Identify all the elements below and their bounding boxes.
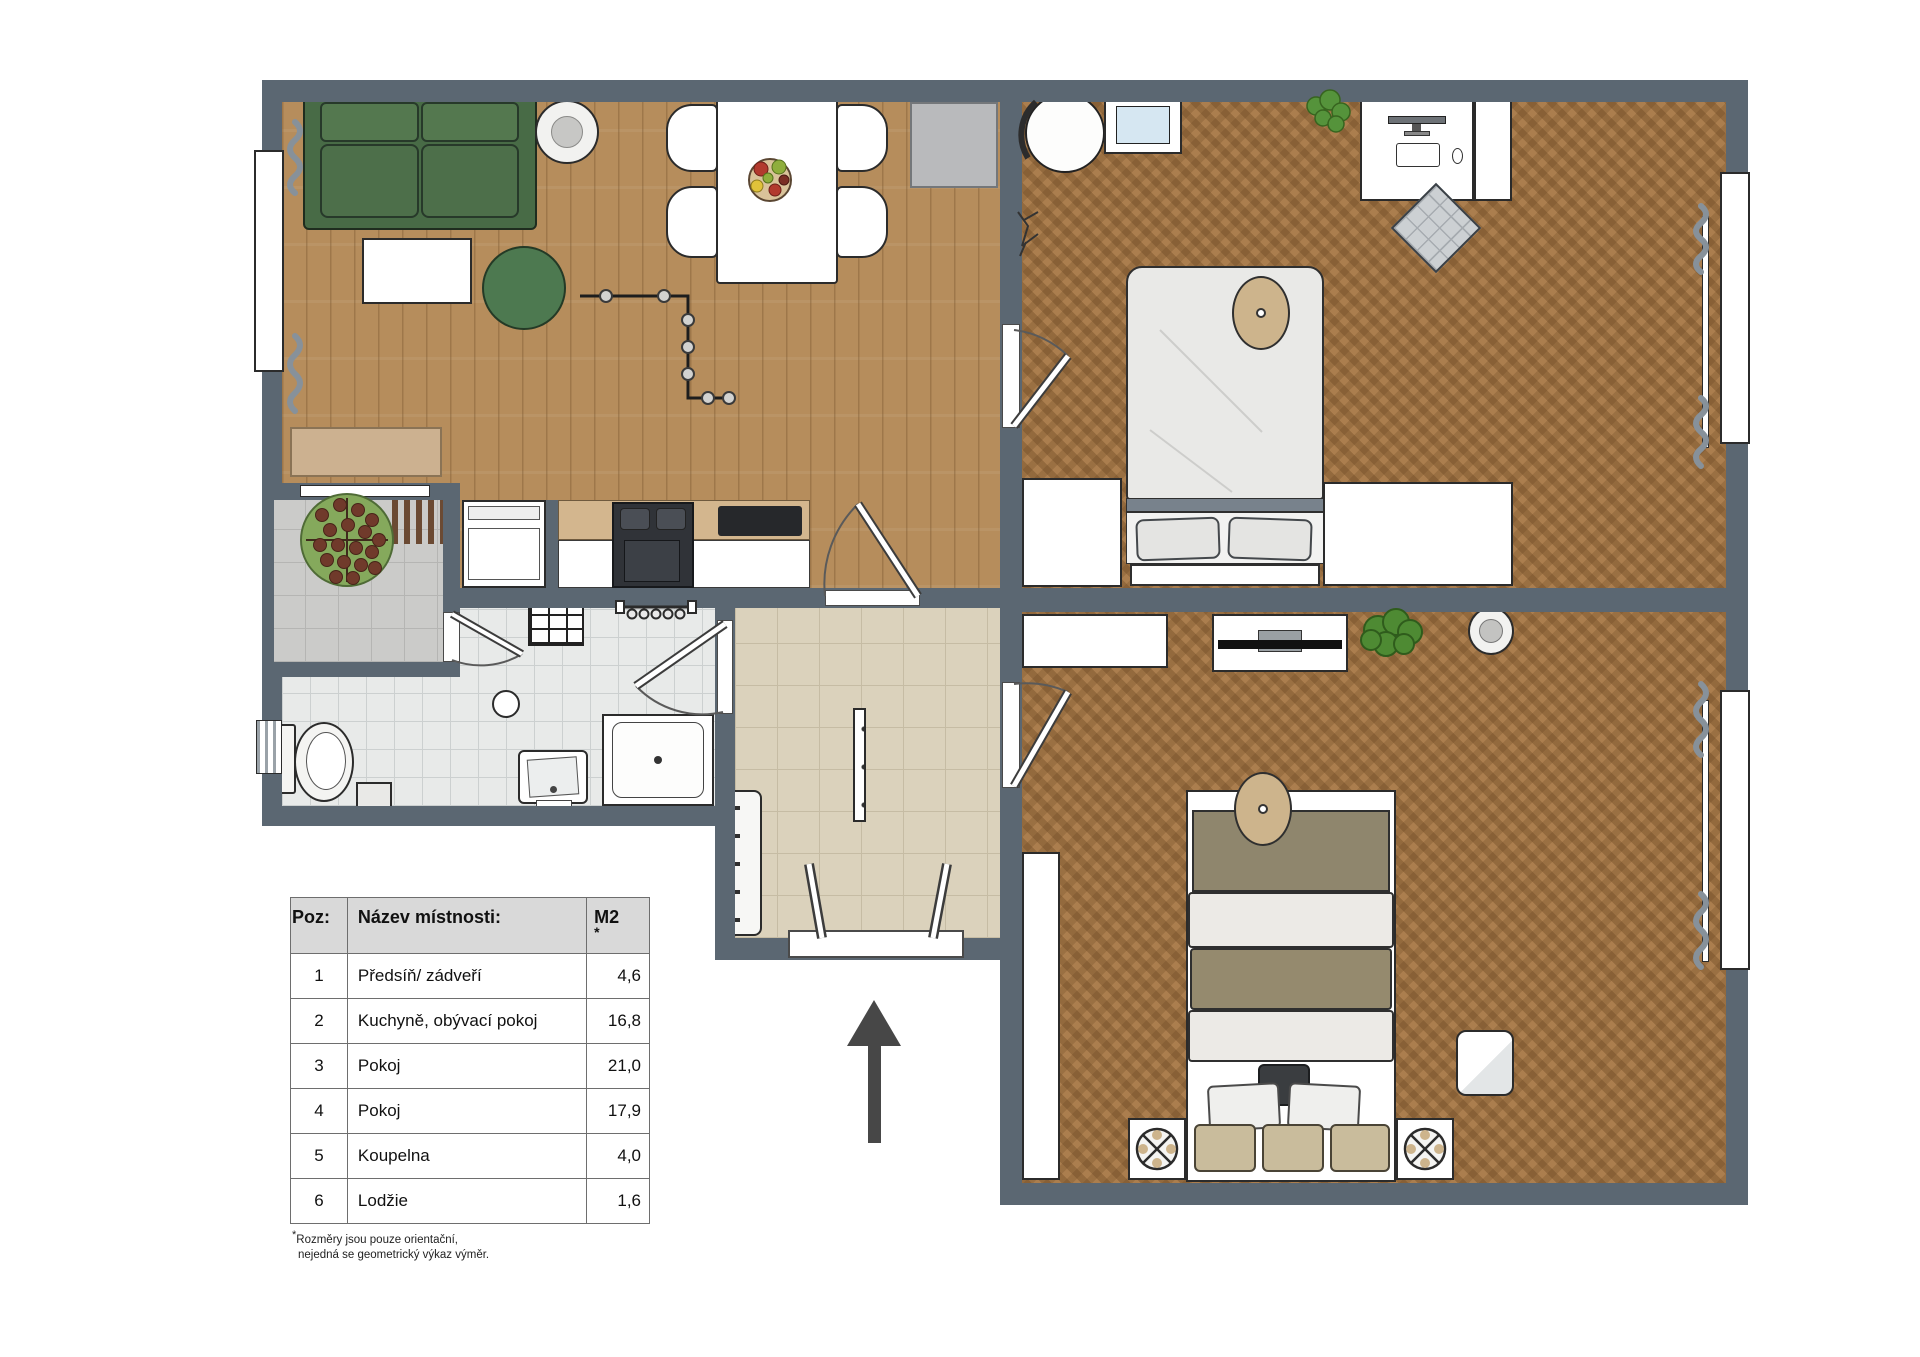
table-row: 6 Lodžie 1,6 bbox=[291, 1179, 650, 1224]
bath-stool bbox=[356, 782, 392, 808]
door-sill-bedroom-top bbox=[1002, 324, 1020, 428]
room-legend-table: Poz: Název místnosti: M2 * 1 Předsíň/ zá… bbox=[290, 897, 650, 1224]
bed-top-headboard bbox=[1130, 564, 1320, 586]
legend-cell-name: Pokoj bbox=[347, 1089, 586, 1134]
bed-bottom-blanket-1 bbox=[1192, 810, 1390, 892]
fan-nightstand-left bbox=[1128, 1118, 1186, 1180]
window-toilet bbox=[256, 720, 282, 774]
shower-drain bbox=[654, 756, 662, 764]
bed-bottom-blanket-2 bbox=[1188, 892, 1394, 948]
legend-header-m2: M2 * bbox=[587, 898, 650, 954]
mouse bbox=[1452, 148, 1463, 164]
window-living-left bbox=[254, 150, 284, 372]
legend-cell-name: Předsíň/ zádveří bbox=[347, 954, 586, 999]
dresser-left bbox=[1022, 478, 1122, 587]
drum-side-table-top bbox=[551, 116, 583, 148]
tv-screen bbox=[1218, 640, 1342, 649]
keyboard bbox=[1396, 143, 1440, 167]
legend-cell-name: Lodžie bbox=[347, 1179, 586, 1224]
sofa-seat-cushion-left bbox=[320, 144, 419, 218]
legend-cell-poz: 2 bbox=[291, 999, 348, 1044]
table-row: 3 Pokoj 21,0 bbox=[291, 1044, 650, 1089]
glass-frame-pane bbox=[1116, 106, 1170, 144]
dining-chair-top-left bbox=[666, 104, 718, 172]
legend-cell-m2: 16,8 bbox=[587, 999, 650, 1044]
legend-header-m2-star: * bbox=[594, 928, 648, 936]
window-bedroom-bottom bbox=[1720, 690, 1750, 970]
table-row: 2 Kuchyně, obývací pokoj 16,8 bbox=[291, 999, 650, 1044]
door-sill-living bbox=[825, 590, 920, 606]
legend-header-row: Poz: Název místnosti: M2 * bbox=[291, 898, 650, 954]
legend-cell-poz: 4 bbox=[291, 1089, 348, 1134]
legend-cell-name: Pokoj bbox=[347, 1044, 586, 1089]
fan-nightstand-right bbox=[1396, 1118, 1454, 1180]
legend-cell-m2: 21,0 bbox=[587, 1044, 650, 1089]
round-table bbox=[1025, 93, 1105, 173]
standing-mirror bbox=[853, 708, 866, 822]
door-sill-loggia bbox=[443, 612, 460, 662]
bed-bottom-cushion-button bbox=[1258, 804, 1268, 814]
window-glass-bedroom-bottom bbox=[1702, 700, 1709, 962]
sofa-back-cushion-left bbox=[320, 102, 419, 142]
room-hallway-floor bbox=[735, 608, 1000, 938]
bed-top-cushion-button bbox=[1256, 308, 1266, 318]
oven-front bbox=[624, 540, 680, 582]
wall-loggia-bottom bbox=[262, 662, 460, 677]
planter-pot-inner bbox=[1479, 619, 1503, 643]
table-row: 5 Koupelna 4,0 bbox=[291, 1134, 650, 1179]
bed-bottom-tan-pillow-2 bbox=[1262, 1124, 1324, 1172]
legend-cell-poz: 5 bbox=[291, 1134, 348, 1179]
glossy-pouf bbox=[1456, 1030, 1514, 1096]
bed-bottom-tan-pillow-3 bbox=[1330, 1124, 1390, 1172]
wardrobe bbox=[1022, 852, 1060, 1180]
stove-burner-right bbox=[656, 508, 686, 530]
legend-cell-m2: 4,6 bbox=[587, 954, 650, 999]
bed-bottom-blanket-3 bbox=[1190, 948, 1392, 1010]
legend-cell-name: Koupelna bbox=[347, 1134, 586, 1179]
dining-chair-top-right bbox=[836, 104, 888, 172]
window-glass-bedroom-top bbox=[1702, 216, 1709, 448]
legend-header-poz: Poz: bbox=[291, 898, 348, 954]
stove-burner-left bbox=[620, 508, 650, 530]
footnote-line-1: *Rozměry jsou pouze orientační, bbox=[292, 1228, 489, 1248]
monitor-base bbox=[1404, 131, 1430, 136]
kitchen-sink-unit bbox=[718, 506, 802, 536]
wall-loggia-left bbox=[262, 500, 274, 677]
toilet-seat bbox=[306, 732, 346, 790]
kitchen-wall-stub bbox=[546, 500, 558, 588]
footnote-text-2: nejedná se geometrický výkaz výměr. bbox=[298, 1249, 489, 1261]
bath-round-stool bbox=[492, 690, 520, 718]
legend-cell-name: Kuchyně, obývací pokoj bbox=[347, 999, 586, 1044]
door-sill-bedroom-bottom bbox=[1002, 682, 1020, 788]
sofa-back-cushion-right bbox=[421, 102, 519, 142]
wall-bedroom-divider bbox=[1022, 588, 1726, 612]
footnote-line-2: nejedná se geometrický výkaz výměr. bbox=[292, 1248, 489, 1263]
table-row: 4 Pokoj 17,9 bbox=[291, 1089, 650, 1134]
window-loggia-strip bbox=[300, 485, 430, 497]
dining-table bbox=[716, 98, 838, 284]
table-row: 1 Předsíň/ zádveří 4,6 bbox=[291, 954, 650, 999]
sideboard-bottom-room bbox=[1022, 614, 1168, 668]
sofa-seat-cushion-right bbox=[421, 144, 519, 218]
coffee-table bbox=[362, 238, 472, 304]
wall-bath-bottom bbox=[262, 806, 735, 826]
fridge-door bbox=[468, 528, 540, 580]
bed-bottom-tan-pillow-1 bbox=[1194, 1124, 1256, 1172]
bed-bottom-blanket-4 bbox=[1188, 1010, 1394, 1062]
door-sill-bathroom bbox=[717, 620, 733, 714]
legend-footnote: *Rozměry jsou pouze orientační, nejedná … bbox=[292, 1228, 489, 1263]
wall-bottom-right bbox=[1000, 1183, 1748, 1205]
round-rug bbox=[482, 246, 566, 330]
floorplan-page: { "legend": { "headers": { "poz": "Poz:"… bbox=[0, 0, 1920, 1357]
entry-threshold bbox=[788, 930, 964, 958]
washbasin-drain bbox=[550, 786, 557, 793]
legend-cell-poz: 1 bbox=[291, 954, 348, 999]
footnote-text-1: Rozměry jsou pouze orientační, bbox=[296, 1234, 458, 1246]
sideboard bbox=[290, 427, 442, 477]
desk-side-cabinet bbox=[1474, 97, 1512, 201]
legend-cell-m2: 4,0 bbox=[587, 1134, 650, 1179]
fridge-handle bbox=[468, 506, 540, 520]
bath-shelf bbox=[528, 602, 584, 646]
storage-cube bbox=[910, 102, 998, 188]
legend-cell-m2: 1,6 bbox=[587, 1179, 650, 1224]
legend-cell-m2: 17,9 bbox=[587, 1089, 650, 1134]
dining-chair-bottom-right bbox=[836, 186, 888, 258]
legend-header-name: Název místnosti: bbox=[347, 898, 586, 954]
north-arrow-icon bbox=[847, 1000, 901, 1143]
bed-top-pillow-right bbox=[1227, 517, 1312, 562]
wall-loggia-right-stub bbox=[443, 662, 460, 677]
bed-top-duvet bbox=[1126, 266, 1324, 500]
dresser-right bbox=[1323, 482, 1513, 586]
wall-spine bbox=[1000, 80, 1022, 1205]
floor-plan: Poz: Název místnosti: M2 * 1 Předsíň/ zá… bbox=[0, 0, 1920, 1357]
bed-top-rail bbox=[1126, 498, 1324, 512]
bed-top-pillow-left bbox=[1135, 517, 1220, 562]
legend-cell-poz: 6 bbox=[291, 1179, 348, 1224]
dining-chair-bottom-left bbox=[666, 186, 718, 258]
window-bedroom-top bbox=[1720, 172, 1750, 444]
monitor bbox=[1388, 116, 1446, 124]
legend-cell-poz: 3 bbox=[291, 1044, 348, 1089]
